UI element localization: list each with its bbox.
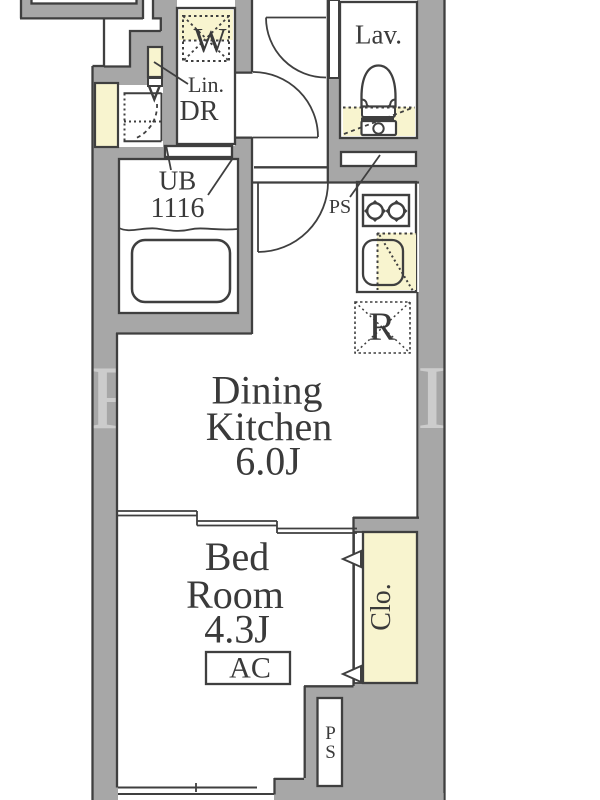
svg-text:Clo.: Clo. [366,583,397,630]
svg-text:S: S [325,742,336,763]
svg-text:W: W [193,21,226,60]
svg-text:AC: AC [229,652,271,685]
svg-text:PS: PS [329,196,351,218]
svg-text:I: I [417,347,447,448]
svg-text:Lav.: Lav. [355,20,402,50]
svg-text:UB: UB [159,165,197,195]
svg-text:4.3J: 4.3J [204,607,270,652]
svg-text:Lin.: Lin. [188,72,224,97]
svg-text:DR: DR [180,96,219,127]
svg-text:R: R [88,347,149,448]
svg-text:P: P [325,723,336,744]
svg-text:6.0J: 6.0J [235,439,301,484]
svg-text:R: R [369,304,396,349]
svg-text:1116: 1116 [151,193,205,224]
